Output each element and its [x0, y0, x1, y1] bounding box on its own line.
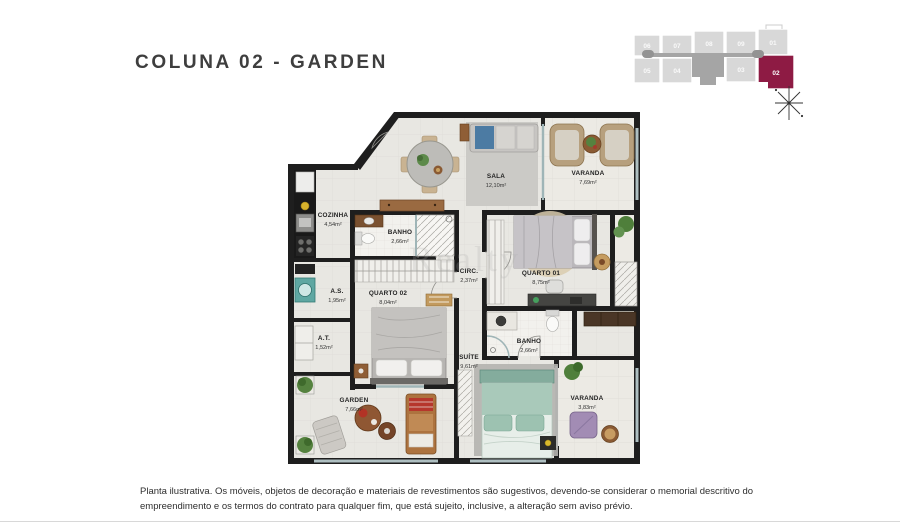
room-label-garden: GARDEN: [340, 397, 369, 404]
room-label-banho2: BANHO: [517, 338, 541, 345]
room-area-banho2: 2,66m²: [520, 348, 538, 354]
room-area-at: 1,52m²: [315, 345, 333, 351]
room-label-quarto02: QUARTO 02: [369, 290, 408, 297]
room-area-cozinha: 4,54m²: [324, 222, 342, 228]
room-area-garden: 7,66m²: [345, 407, 363, 413]
compass-icon: [775, 86, 803, 120]
keyplan-unit-05: 05: [643, 68, 651, 75]
keyplan-unit-04: 04: [673, 68, 681, 75]
room-label-quarto01: QUARTO 01: [522, 270, 561, 277]
keyplan-unit-03: 03: [737, 67, 745, 74]
room-label-as: A.S.: [330, 288, 343, 295]
room-label-cozinha: COZINHA: [318, 212, 349, 219]
page-title: COLUNA 02 - GARDEN: [135, 52, 388, 74]
room-area-circ: 2,37m²: [460, 278, 478, 284]
room-label-suite: SUÍTE: [459, 352, 479, 361]
keyplan: 06 07 08 09 01 05 04 03 02: [626, 24, 808, 128]
keyplan-unit-06: 06: [643, 43, 651, 50]
room-area-quarto02: 8,04m²: [379, 300, 397, 306]
room-label-varanda1: VARANDA: [572, 170, 605, 177]
room-area-banho1: 2,66m²: [391, 239, 409, 245]
room-area-suite: 9,61m²: [460, 364, 478, 370]
keyplan-unit-09: 09: [737, 41, 745, 48]
storage-cabinet: [295, 326, 313, 360]
kitchen-counter: [294, 170, 316, 258]
room-area-as: 1,95m²: [328, 298, 346, 304]
keyplan-unit-07: 07: [673, 43, 681, 50]
keyplan-unit-02: 02: [772, 70, 780, 77]
room-label-sala: SALA: [487, 173, 505, 180]
floor-plan: SALA 12,10m² VARANDA 7,69m² COZINHA 4,54…: [288, 112, 642, 466]
washing-machine: [295, 264, 315, 302]
room-area-varanda1: 7,69m²: [579, 180, 597, 186]
room-area-sala: 12,10m²: [486, 183, 507, 189]
room-label-at: A.T.: [318, 335, 330, 342]
room-label-varanda2: VARANDA: [571, 395, 604, 402]
keyplan-unit-08: 08: [705, 41, 713, 48]
room-area-quarto01: 8,75m²: [532, 280, 550, 286]
disclaimer-text: Planta ilustrativa. Os móveis, objetos d…: [140, 485, 796, 514]
bottom-divider: [0, 521, 900, 522]
room-label-circ: CIRC.: [460, 268, 478, 275]
bedroom2-closet: [355, 260, 454, 282]
keyplan-unit-01: 01: [769, 40, 777, 47]
sofa: [460, 124, 538, 152]
sideboard: [380, 200, 444, 211]
room-label-banho1: BANHO: [388, 229, 412, 236]
room-area-varanda2: 3,83m²: [578, 405, 596, 411]
